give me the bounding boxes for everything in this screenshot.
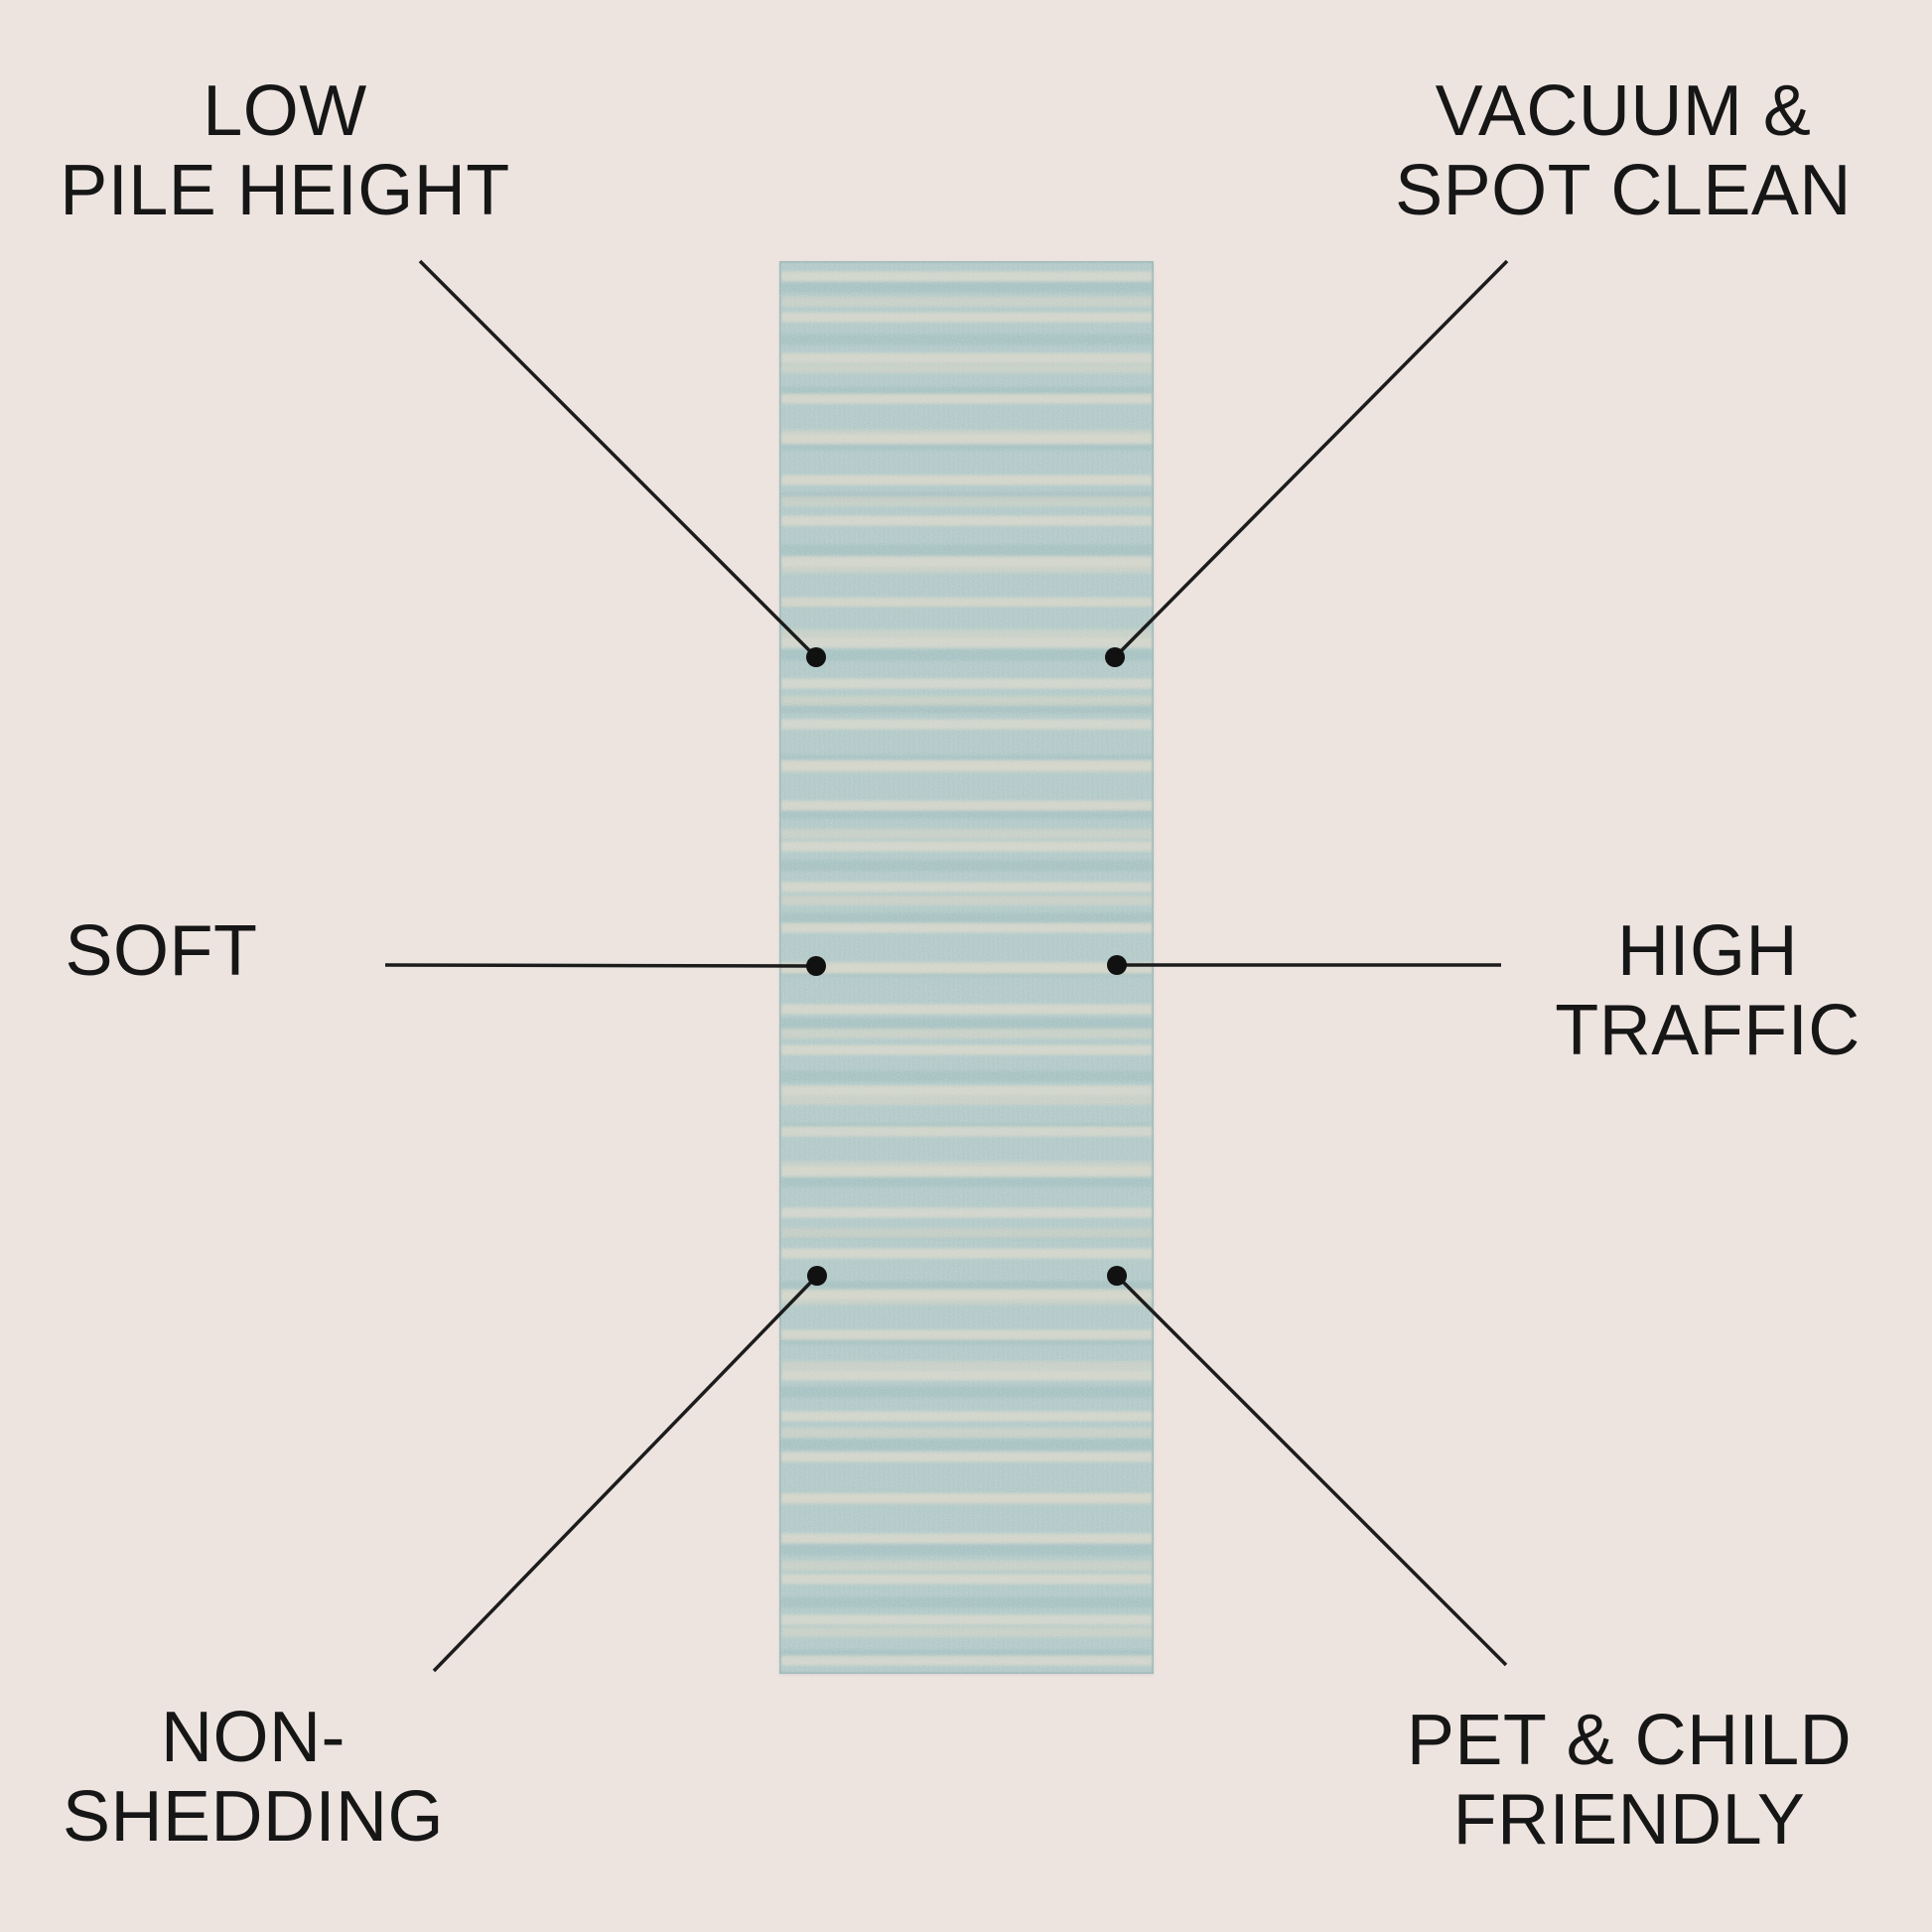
callout-dot-soft [806,956,826,976]
feature-label-low-pile-height: LOW PILE HEIGHT [37,71,533,230]
feature-label-pet-child-friendly: PET & CHILD FRIENDLY [1381,1701,1877,1860]
callout-line-low-pile-height [420,261,816,657]
callout-dot-pet-child-friendly [1107,1266,1127,1286]
callout-line-vacuum-spot-clean [1115,261,1507,657]
callout-dot-vacuum-spot-clean [1105,647,1125,667]
feature-label-high-traffic: HIGH TRAFFIC [1459,911,1932,1070]
callout-line-pet-child-friendly [1117,1276,1506,1665]
callout-dot-low-pile-height [806,647,826,667]
infographic-canvas: LOW PILE HEIGHT VACUUM & SPOT CLEAN SOFT… [0,0,1932,1932]
feature-label-soft: SOFT [0,911,323,991]
callout-dot-non-shedding [807,1266,827,1286]
callout-line-non-shedding [434,1276,817,1671]
feature-label-vacuum-spot-clean: VACUUM & SPOT CLEAN [1375,71,1871,230]
callout-line-soft [385,965,816,966]
callout-dot-high-traffic [1107,955,1127,975]
feature-label-non-shedding: NON- SHEDDING [5,1698,501,1857]
